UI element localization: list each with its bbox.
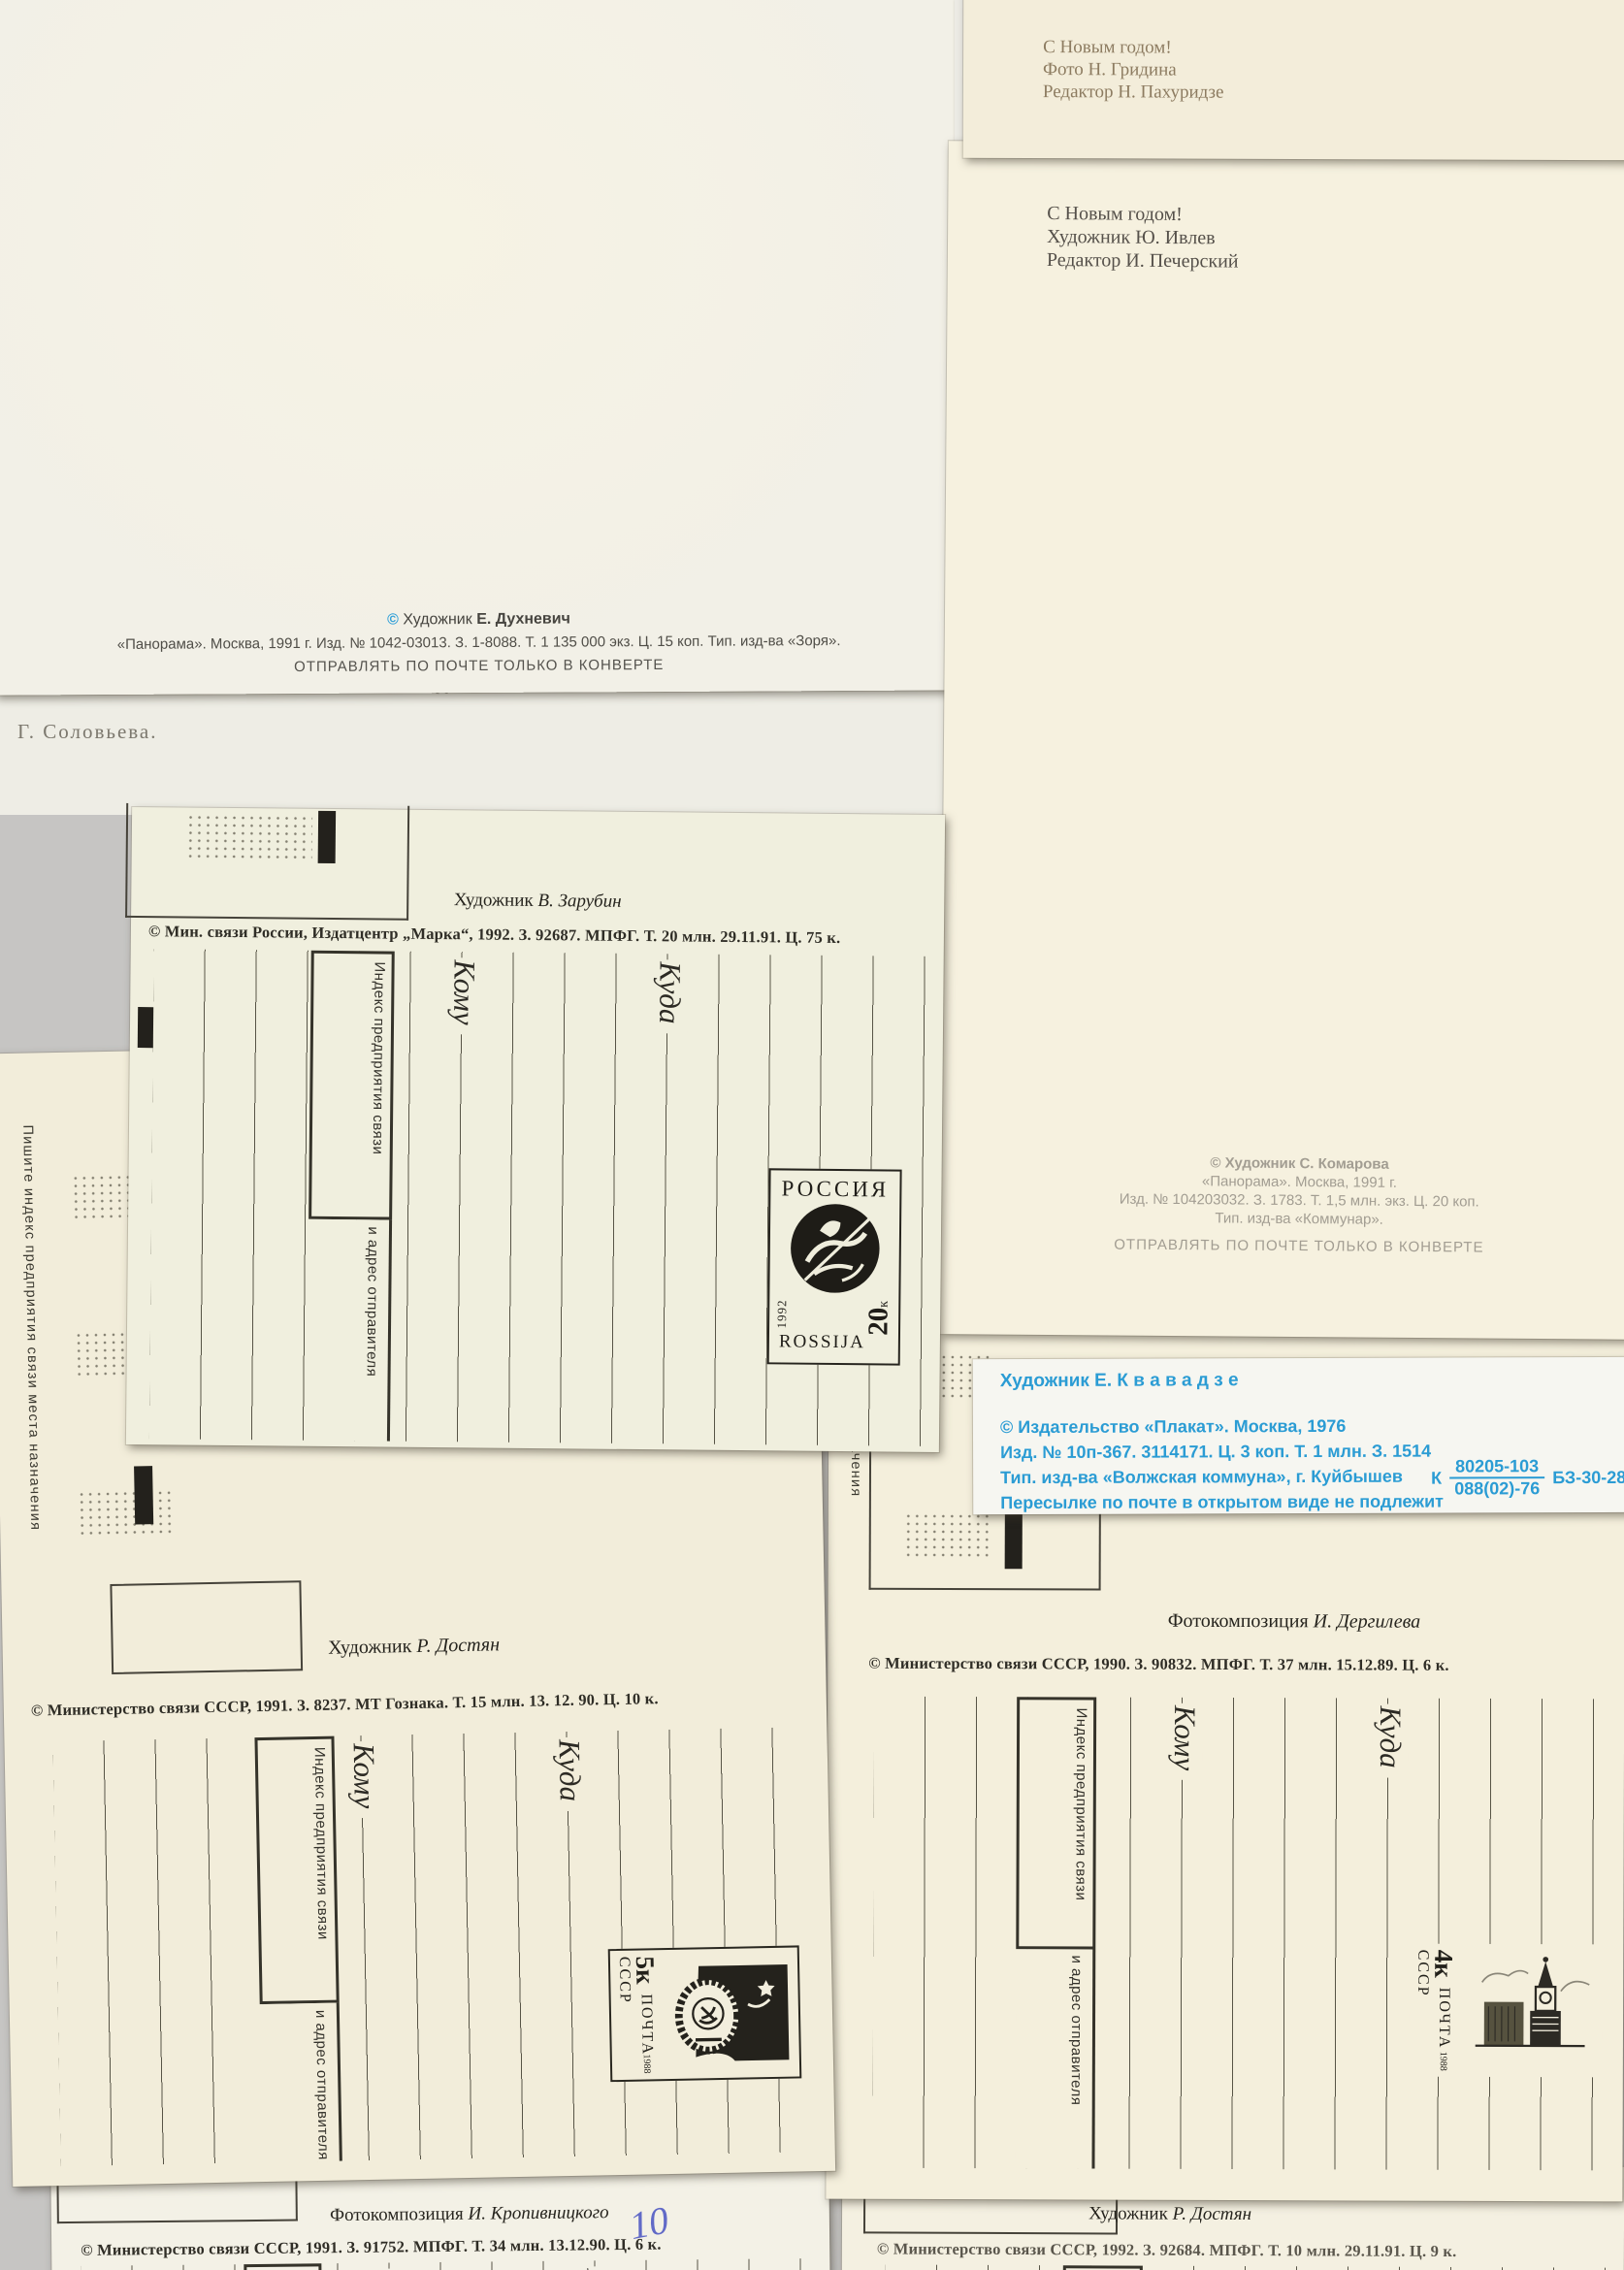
stamp-value-number: 20: [863, 1308, 894, 1336]
sender-index-caption: Индекс предприятия связи: [370, 961, 388, 1154]
code-prefix: К: [1431, 1468, 1442, 1488]
caption-name: В. Зарубин: [537, 891, 621, 912]
soviet-emblem-flag-art: [662, 1954, 794, 2074]
caption-label: Художник: [1088, 2203, 1168, 2223]
sender-index-caption: Индекс предприятия связи: [311, 1747, 332, 1940]
envelope-notice: ОТПРАВЛЯТЬ ПО ПОЧТЕ ТОЛЬКО В КОНВЕРТЕ: [1008, 1235, 1590, 1258]
sender-address-caption: и адрес отправителя: [1068, 1955, 1086, 2105]
imprint-line: © Министерство связи СССР, 1990. З. 9083…: [868, 1654, 1449, 1675]
card-caption: Художник Р. Достян: [842, 2202, 1498, 2226]
komu-label: Кому: [345, 1741, 384, 1819]
address-grid: Индекс предприятия связи и адрес отправи…: [52, 1727, 827, 2166]
postcard-kvavadze: Художник Е. К в а в а д з е © Издательст…: [973, 1357, 1624, 1514]
address-grid: Индекс предприятия связи и адрес отправи…: [149, 949, 930, 1446]
code-top: 80205-103: [1449, 1456, 1544, 1478]
artist-line: © Художник Е. Духневич: [0, 608, 964, 631]
postcard-gridina: С Новым годом! Фото Н. Гридина Редактор …: [963, 0, 1624, 160]
caption-name: Р. Достян: [1173, 2204, 1252, 2224]
greeting-line: С Новым годом!: [1043, 36, 1224, 59]
stamp-year: 1988: [1438, 2052, 1448, 2071]
publisher-line: © Издательство «Плакат». Москва, 1976: [1000, 1416, 1347, 1438]
kuda-label: Куда: [1372, 1704, 1409, 1778]
credits-block: С Новым годом! Фото Н. Гридина Редактор …: [1043, 36, 1224, 104]
caption-name: И. Дергилева: [1314, 1610, 1421, 1632]
sender-address-caption: и адрес отправителя: [312, 2010, 332, 2160]
komu-label: Кому: [445, 957, 483, 1035]
postcards-scan: Фотокомпозиция И. Кропивницкого © Минист…: [0, 0, 1624, 2270]
code-bottom: 088(02)-76: [1449, 1478, 1544, 1499]
komu-label: Кому: [1166, 1703, 1203, 1780]
kuda-label: Куда: [551, 1737, 589, 1812]
artist-name: Е. Духневич: [476, 611, 570, 629]
postal-notice: Пересылке по почте в открытом виде не по…: [1000, 1492, 1444, 1514]
postal-code-dots: [78, 1489, 174, 1536]
sender-index-box: Индекс предприятия связи: [244, 2263, 321, 2270]
stamp-value: 20к: [863, 1301, 895, 1336]
envelope-notice: ОТПРАВЛЯТЬ ПО ПОЧТЕ ТОЛЬКО В КОНВЕРТЕ: [0, 655, 964, 676]
imprint-block: © Художник С. Комарова «Панорама». Москв…: [1008, 1152, 1591, 1258]
stamp-ussr-4k: 4к ПОЧТА СССР 1988: [1409, 1944, 1603, 2078]
sender-index-caption: Индекс предприятия связи: [1072, 1707, 1089, 1900]
registration-mark: [134, 1466, 153, 1524]
registration-mark: [318, 811, 337, 863]
stamp-inscription: 5к ПОЧТА СССР: [616, 1956, 660, 2074]
st-george-art: [788, 1200, 882, 1299]
code-fraction: 80205-103 088(02)-76: [1449, 1456, 1544, 1499]
stamp-value-unit: к: [877, 1301, 892, 1308]
imprint-line: © Мин. связи России, Издатцентр „Марка“,…: [148, 922, 841, 948]
imprint-line: «Панорама». Москва, 1991 г. Изд. № 1042-…: [0, 632, 964, 653]
printer-line: Тип. изд-ва «Коммунар».: [1008, 1208, 1590, 1231]
caption-name: Р. Достян: [416, 1634, 500, 1657]
artist-label: Художник: [403, 611, 471, 628]
stamp-russia-20k: РОССИЯ 1992 ROSSIJA 20к: [767, 1168, 902, 1365]
catalog-code: К 80205-103 088(02)-76 БЗ-30-28-76: [1431, 1456, 1624, 1500]
stamp-year: 1992: [774, 1299, 790, 1328]
editor-line: Редактор И. Печерский: [1047, 248, 1239, 274]
stamp-value: 4к: [1429, 1950, 1458, 1978]
sender-column-line: [1091, 1950, 1095, 2169]
stamp-year: 1988: [641, 2054, 652, 2073]
postcard-zarubin: Художник В. Зарубин © Мин. связи России,…: [126, 807, 945, 1452]
sender-index-box: Индекс предприятия связи: [309, 951, 395, 1220]
postal-code-dots: [186, 814, 312, 861]
postcard-kropivnitsky: Фотокомпозиция И. Кропивницкого © Минист…: [50, 2169, 829, 2270]
imprint-block: © Художник Е. Духневич «Панорама». Москв…: [0, 608, 964, 676]
credits-block: С Новым годом! Художник Ю. Ивлев Редакто…: [1047, 202, 1239, 274]
address-grid: Индекс предприятия связи Кому Куда: [886, 2264, 1623, 2270]
handwritten-mark: 10: [626, 2196, 672, 2249]
stamp-country: РОССИЯ: [770, 1176, 899, 1202]
stamp-ussr-5k: 5к ПОЧТА СССР 1988: [608, 1945, 802, 2082]
photo-line: Фото Н. Гридина: [1043, 58, 1224, 81]
editor-line: Редактор Н. Пахуридзе: [1043, 81, 1224, 104]
imprint-line: © Министерство связи СССР, 1992. З. 9268…: [877, 2239, 1457, 2261]
greeting-line: С Новым годом!: [1047, 202, 1239, 227]
caption-label: Художник: [454, 890, 534, 911]
code-right: БЗ-30-28-76: [1552, 1467, 1624, 1487]
author-caption: Г. Соловьева.: [17, 720, 158, 744]
sender-index-box: Индекс предприятия связи: [254, 1736, 339, 2005]
sender-index-box: Индекс предприятия связи: [1063, 2265, 1143, 2270]
kuda-label: Куда: [578, 2266, 616, 2270]
caption-label: Художник: [328, 1636, 411, 1659]
artist-line: Художник Ю. Ивлев: [1047, 225, 1239, 250]
stamp-country-latin: ROSSIJA: [769, 1331, 875, 1353]
sender-address-caption: и адрес отправителя: [364, 1226, 381, 1377]
postcard-ivlev-komarova: С Новым годом! Художник Ю. Ивлев Редакто…: [939, 141, 1624, 1340]
imprint-line: © Министерство связи СССР, 1991. З. 8237…: [31, 1689, 659, 1720]
caption-label: Фотокомпозиция: [1168, 1610, 1309, 1633]
caption-label: Фотокомпозиция: [330, 2204, 464, 2225]
printer-line: Тип. изд-ва «Волжская коммуна», г. Куйбы…: [1000, 1467, 1403, 1488]
registration-mark: [138, 1007, 153, 1048]
imprint-line: © Министерство связи СССР, 1991. З. 9175…: [81, 2235, 662, 2260]
sender-index-box: Индекс предприятия связи: [1016, 1697, 1096, 1949]
kremlin-tower-art: [1460, 1950, 1597, 2067]
caption-name: И. Кропивницкого: [468, 2202, 608, 2224]
stamp-inscription: 4к ПОЧТА СССР: [1414, 1950, 1456, 2071]
card-caption: Фотокомпозиция И. Дергилева: [954, 1609, 1624, 1634]
postcard-dukhnevich: © Художник Е. Духневич «Панорама». Москв…: [0, 0, 964, 696]
address-grid: Индекс предприятия связи и адрес отправи…: [872, 1697, 1611, 2171]
stamp-value: 5к: [631, 1956, 661, 1985]
address-grid: Индекс предприятия связи Кому Куда: [81, 2258, 828, 2270]
copyright-icon: ©: [387, 611, 399, 628]
artist-line: Художник Е. К в а в а д з е: [1000, 1370, 1239, 1392]
kuda-label: Куда: [651, 959, 689, 1033]
edge-note: Пишите индекс предприятия связи места на…: [19, 1124, 45, 1629]
edition-line: Изд. № 10п-367. 3114171. Ц. 3 коп. Т. 1 …: [1000, 1442, 1431, 1464]
